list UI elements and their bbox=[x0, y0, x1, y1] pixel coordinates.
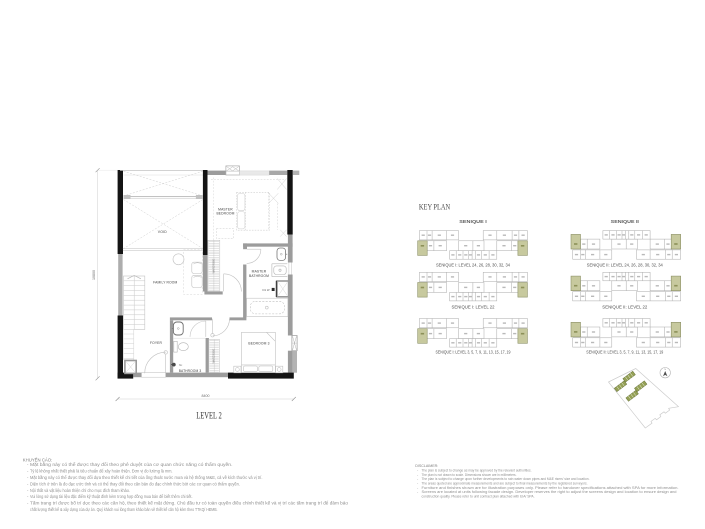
svg-text:construction quality. Please r: construction quality. Please refer to un… bbox=[422, 494, 535, 498]
svg-text:Tỷ lệ không nhất thiết phải là: Tỷ lệ không nhất thiết phải là tiêu chuẩ… bbox=[30, 469, 173, 474]
svg-text:-: - bbox=[27, 475, 29, 480]
svg-text:BATHROOM: BATHROOM bbox=[249, 274, 269, 278]
svg-text:Mặt bằng này có thể được thay: Mặt bằng này có thể được thay đổi dựa th… bbox=[30, 475, 263, 480]
svg-text:-: - bbox=[27, 494, 29, 499]
svg-text:SENIQUE II: SENIQUE II bbox=[611, 219, 639, 224]
svg-text:8400: 8400 bbox=[202, 394, 210, 398]
svg-text:WARDROBE: WARDROBE bbox=[213, 348, 216, 363]
svg-text:Tấm trang trí được bố trí dọc: Tấm trang trí được bố trí dọc theo các c… bbox=[30, 501, 349, 506]
svg-text:KEY PLAN: KEY PLAN bbox=[419, 202, 451, 212]
svg-text:SENIQUE II: LEVEL 3, 5, 7, 9,: SENIQUE II: LEVEL 3, 5, 7, 9, 11, 13, 15… bbox=[586, 350, 664, 355]
svg-text:SH: SH bbox=[179, 363, 183, 367]
svg-text:DISCLAIMER:: DISCLAIMER: bbox=[415, 464, 438, 468]
svg-text:VOID: VOID bbox=[158, 230, 167, 234]
svg-text:chất lượng thiết kế & xây dựng: chất lượng thiết kế & xây dựng của dự án… bbox=[30, 507, 218, 512]
svg-text:D1 W: D1 W bbox=[263, 288, 270, 292]
svg-text:10800: 10800 bbox=[92, 270, 96, 280]
svg-text:SENIQUE I: LEVEL 22: SENIQUE I: LEVEL 22 bbox=[452, 305, 496, 310]
svg-text:Nội thất và vật liệu hoàn thiệ: Nội thất và vật liệu hoàn thiện chỉ cho … bbox=[30, 488, 130, 493]
svg-text:Diện tích ở trên là đo đạc ước: Diện tích ở trên là đo đạc ước tính và c… bbox=[30, 481, 240, 486]
svg-text:Mặt bằng này có thể được thay: Mặt bằng này có thể được thay đổi theo p… bbox=[30, 462, 233, 467]
svg-text:SENIQUE II: LEVEL 22: SENIQUE II: LEVEL 22 bbox=[602, 305, 648, 310]
svg-text:-: - bbox=[27, 481, 29, 486]
svg-text:BATHROOM 3: BATHROOM 3 bbox=[179, 369, 202, 373]
svg-text:SENIQUE I: LEVEL 24, 26, 28, 3: SENIQUE I: LEVEL 24, 26, 28, 30, 32, 34 bbox=[436, 262, 511, 267]
svg-text:BEDROOM: BEDROOM bbox=[216, 212, 234, 216]
svg-text:SENIQUE I: LEVEL 3, 5, 7, 9, 1: SENIQUE I: LEVEL 3, 5, 7, 9, 11, 13, 15,… bbox=[436, 350, 512, 355]
svg-text:SENIQUE II: LEVEL 24, 26, 28,: SENIQUE II: LEVEL 24, 26, 28, 30, 32, 34 bbox=[587, 262, 664, 267]
svg-text:FAMILY ROOM: FAMILY ROOM bbox=[153, 281, 177, 285]
svg-text:BEDROOM 3: BEDROOM 3 bbox=[248, 342, 269, 346]
svg-text:SENIQUE I: SENIQUE I bbox=[459, 219, 486, 224]
svg-text:Vui lòng sử dụng tài liệu đặc: Vui lòng sử dụng tài liệu đặc điểm kỹ th… bbox=[30, 494, 193, 499]
svg-text:-: - bbox=[27, 462, 29, 467]
svg-text:FOYER: FOYER bbox=[150, 341, 163, 345]
svg-text:-: - bbox=[27, 501, 29, 506]
svg-text:LEVEL 2: LEVEL 2 bbox=[196, 412, 222, 422]
svg-text:-: - bbox=[27, 469, 29, 474]
svg-text:-: - bbox=[27, 488, 29, 493]
svg-text:WARDROBE: WARDROBE bbox=[212, 258, 215, 273]
svg-text:-: - bbox=[417, 490, 419, 494]
